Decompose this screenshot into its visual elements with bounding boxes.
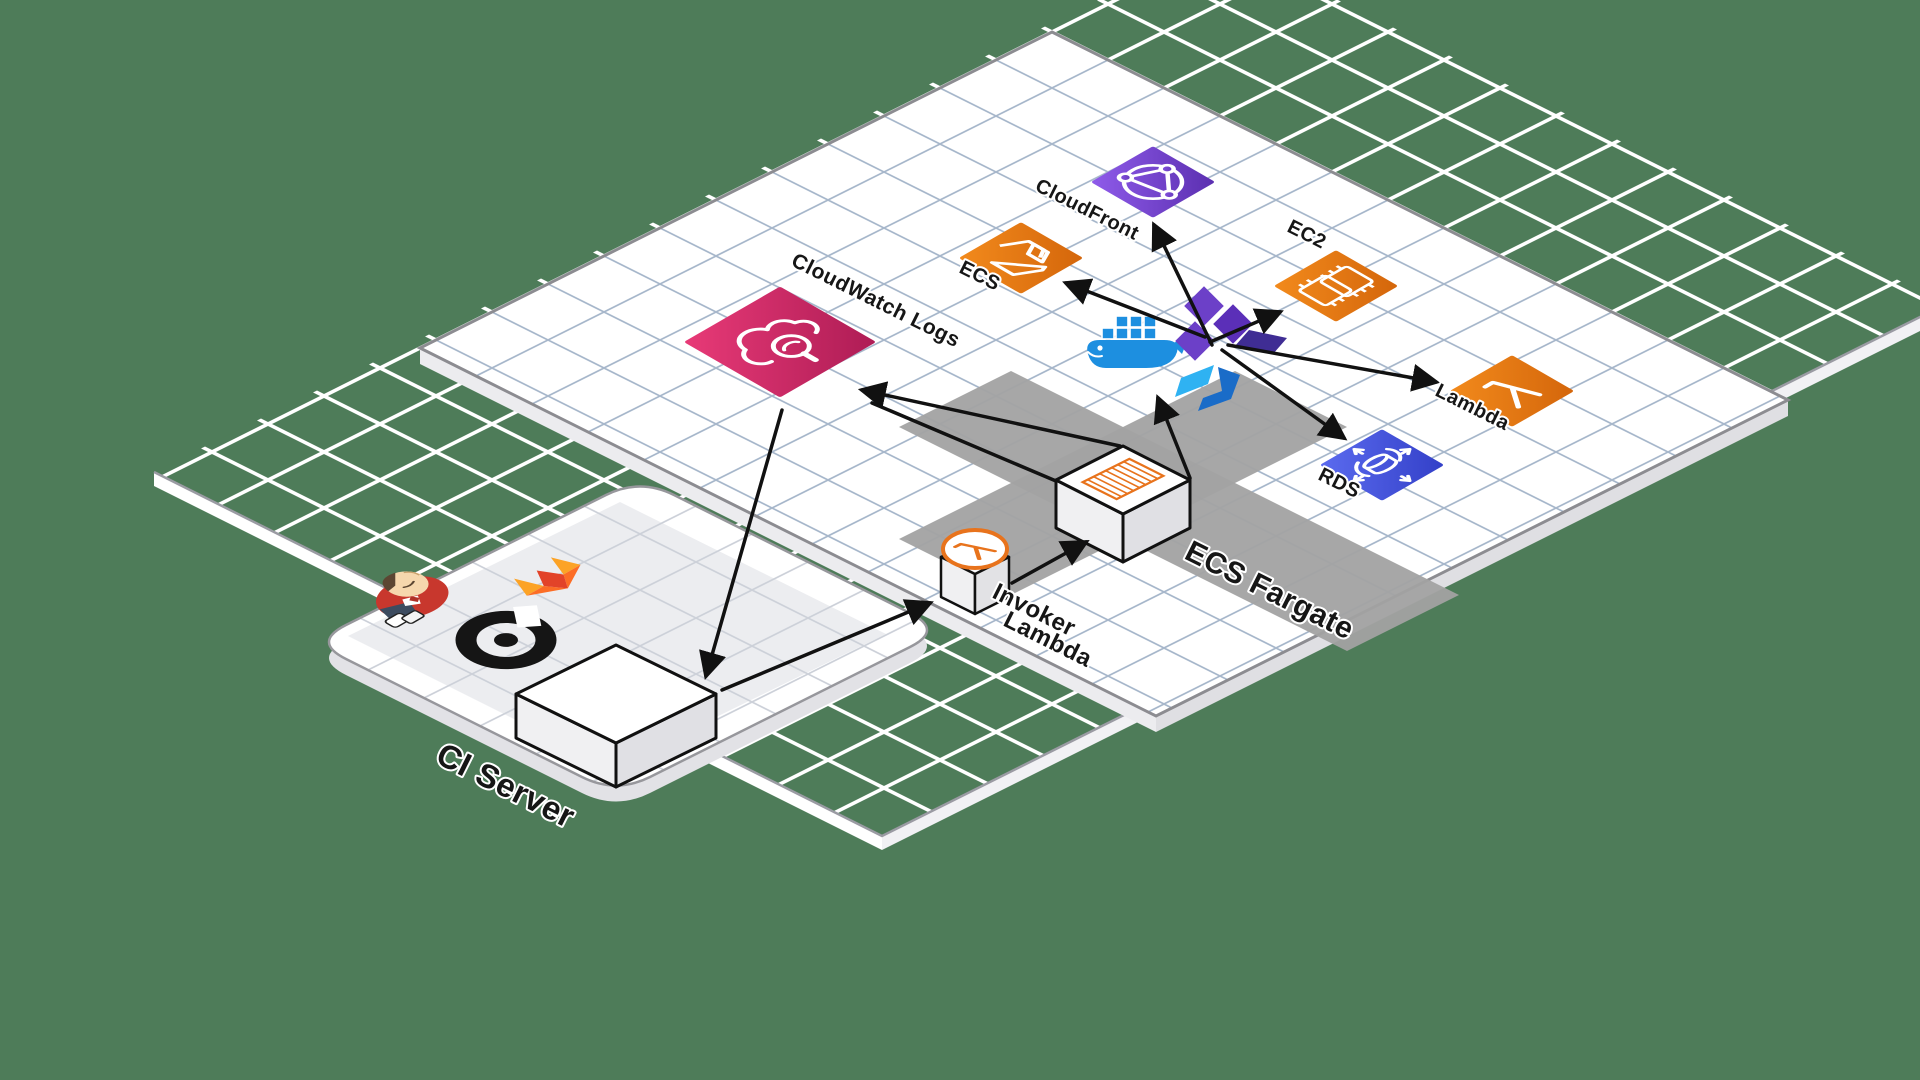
diagram-canvas: CloudFront ECS EC2 Lambda RDS CloudWatch… <box>0 0 1920 1080</box>
isometric-architecture-diagram: CloudFront ECS EC2 Lambda RDS CloudWatch… <box>0 0 1920 1080</box>
